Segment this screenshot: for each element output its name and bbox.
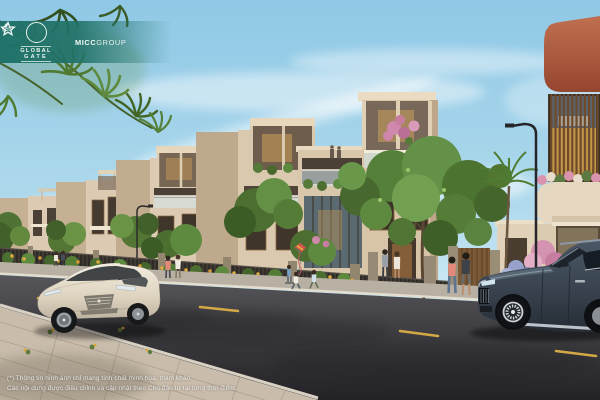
logo-divider	[21, 46, 51, 47]
global-gate-line2: GATE	[24, 54, 48, 60]
logo-divider	[21, 61, 51, 62]
sailboat-over-waves-circle-icon	[26, 22, 47, 43]
disclaimer-line-2: Các nội dung được điều chỉnh và cập nhật…	[7, 384, 237, 394]
micc-group-logo: MICCGROUP	[75, 37, 126, 47]
render-image: GLOBAL GATE MICCGROUP (*) Thông tin hình…	[0, 0, 600, 400]
group-light: GROUP	[96, 38, 126, 47]
disclaimer-text: (*) Thông tin hình ảnh chỉ mang tính chấ…	[7, 374, 237, 393]
micc-bold: MICC	[75, 38, 96, 47]
star-outline-icon	[0, 21, 16, 37]
micc-group-wordmark: MICCGROUP	[75, 38, 126, 47]
brand-ribbon: GLOBAL GATE MICCGROUP	[0, 21, 172, 63]
disclaimer-line-1: (*) Thông tin hình ảnh chỉ mang tính chấ…	[7, 374, 237, 384]
global-gate-logo: GLOBAL GATE	[13, 22, 59, 63]
